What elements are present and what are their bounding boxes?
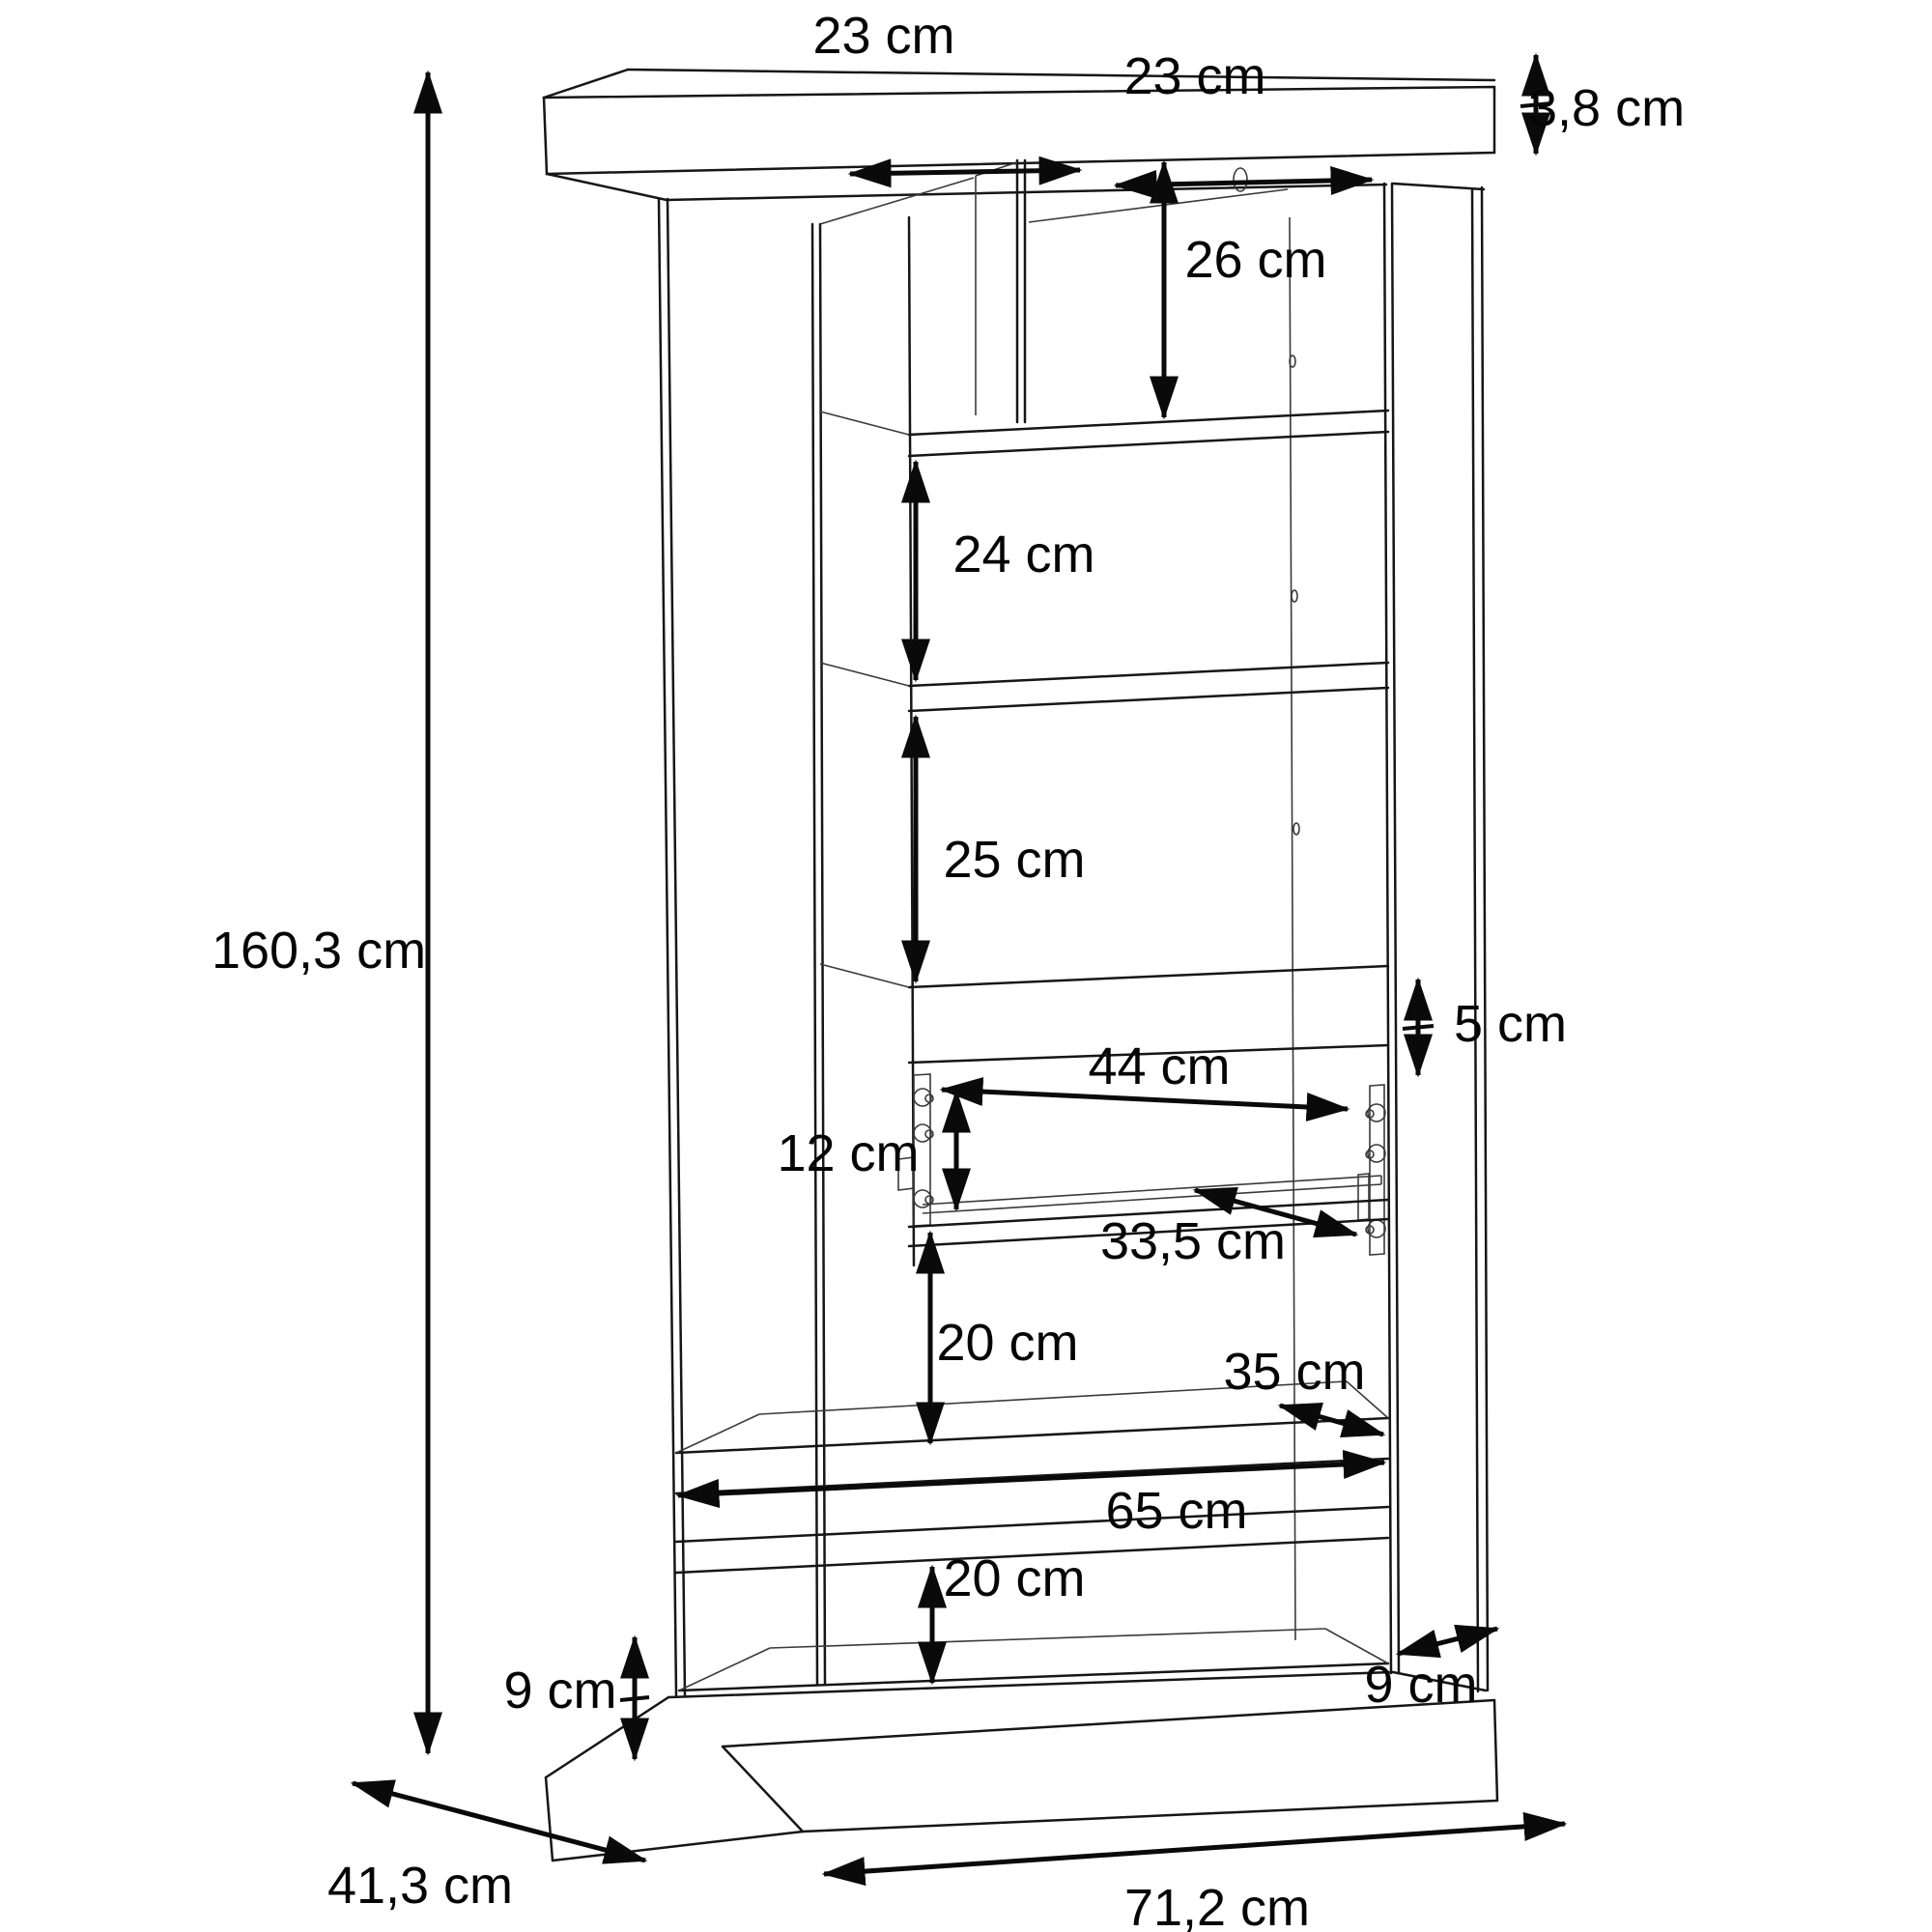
furniture-dimension-diagram: 23 cm 23 cm 3,8 cm 26 cm 24 cm 25 cm 160…	[0, 0, 1932, 1932]
dim-label-drawer-front-height: 12 cm	[777, 1124, 919, 1182]
dim-top-panel-thickness: 3,8 cm	[1520, 55, 1685, 154]
shelf-2	[820, 663, 1388, 711]
top-section-divider	[820, 160, 1288, 422]
bottom-board	[679, 1629, 1388, 1690]
dim-upper-shelf-section-height: 24 cm	[916, 462, 1095, 680]
dim-top-compartment-left: 23 cm	[812, 7, 1080, 174]
diagram-canvas: 23 cm 23 cm 3,8 cm 26 cm 24 cm 25 cm 160…	[0, 0, 1932, 1932]
dim-top-compartment-right: 23 cm	[1116, 47, 1372, 185]
dim-label-upper-shelf-section-height: 24 cm	[952, 526, 1094, 583]
dim-label-drawer-inner-depth: 33,5 cm	[1100, 1212, 1286, 1270]
dim-label-top-section-height: 26 cm	[1184, 231, 1326, 289]
dim-label-apron-height: 5 cm	[1454, 995, 1567, 1053]
dim-label-top-compartment-left: 23 cm	[812, 7, 954, 65]
dim-lower-open-section-height: 20 cm	[932, 1549, 1086, 1683]
plinth	[546, 1672, 1497, 1861]
dim-top-section-height: 26 cm	[1164, 162, 1327, 417]
cabinet-body-edges	[659, 184, 1488, 1696]
dim-label-top-panel-thickness: 3,8 cm	[1528, 79, 1685, 137]
dim-label-lower-open-section-height: 20 cm	[943, 1549, 1085, 1607]
dim-label-plinth-side-depth: 9 cm	[1364, 1656, 1477, 1714]
dim-overall-depth: 41,3 cm	[327, 1783, 645, 1915]
dim-label-overall-depth: 41,3 cm	[327, 1857, 513, 1915]
dim-label-bottom-inner-width: 65 cm	[1105, 1482, 1247, 1540]
dim-upper-open-section-height: 20 cm	[930, 1233, 1079, 1443]
dim-label-overall-width: 71,2 cm	[1124, 1879, 1310, 1932]
dim-overall-width: 71,2 cm	[824, 1824, 1565, 1932]
dim-label-overall-height: 160,3 cm	[212, 922, 426, 980]
dim-bottom-inner-width: 65 cm	[678, 1463, 1384, 1540]
dim-drawer-inner-depth: 33,5 cm	[1100, 1190, 1356, 1270]
dim-middle-shelf-section-height: 25 cm	[916, 717, 1086, 981]
dim-label-top-compartment-right: 23 cm	[1123, 47, 1265, 105]
dim-label-upper-open-section-height: 20 cm	[936, 1314, 1078, 1372]
dim-drawer-front-height: 12 cm	[777, 1092, 956, 1209]
dim-plinth-height: 9 cm	[503, 1637, 649, 1759]
dim-label-drawer-inner-width: 44 cm	[1088, 1037, 1230, 1095]
dim-label-shelf-depth: 35 cm	[1223, 1343, 1365, 1401]
dim-shelf-depth: 35 cm	[1223, 1343, 1383, 1435]
shelf-1	[820, 411, 1388, 456]
dim-overall-height: 160,3 cm	[212, 72, 428, 1753]
dim-label-middle-shelf-section-height: 25 cm	[943, 831, 1085, 889]
dim-label-plinth-height: 9 cm	[503, 1662, 616, 1719]
